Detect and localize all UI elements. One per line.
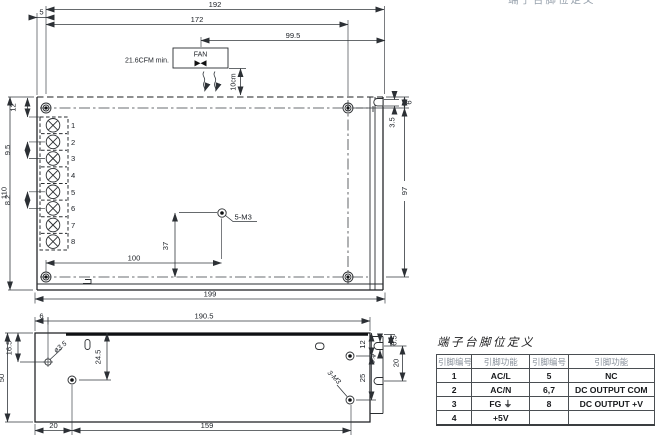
pin-number [530,411,568,426]
dimension-16-5: 16.5 [5,333,45,362]
dim-label-20: 20 [392,359,401,367]
terminal-number: 4 [71,171,75,180]
dim-label-3-5: 3.5 [368,354,377,365]
dim-label-10cm: 10cm [231,73,238,90]
m3-hole [346,352,354,360]
dim-label-50: 50 [0,374,6,382]
dim-label-20: 20 [49,421,57,430]
callout-5-m3: 5-M3 [226,213,258,222]
dim-label-199: 199 [204,290,217,299]
dim-label-12: 12 [358,340,367,348]
spec-sheet-page: 端子台脚位定义 [0,0,662,441]
terminal-number: 2 [71,138,75,147]
dimension-192: 192 [46,0,385,94]
dimension-199: 199 [35,290,385,304]
pin-col-header: 引脚编号 [437,355,472,369]
dimension-10cm: 10cm [229,69,246,96]
dim-label-6: 6 [405,100,414,104]
pin-function [568,411,654,426]
pin-function: AC/L [472,369,530,383]
dim-label-12: 12 [9,103,18,111]
pin-table-row: 4 +5V [437,411,655,426]
dimension-97: 97 [386,108,409,277]
pin-table-row: 2 AC/N 6,7 DC OUTPUT COM [437,383,655,397]
pin-number: 3 [437,397,472,411]
m3-hole [346,396,354,404]
mounting-screws [41,103,353,282]
m3-hole [68,376,76,384]
callout-3-m3: 3-M3 [326,370,347,397]
top-view-case-outline [37,97,383,290]
dim-label-16-5: 16.5 [5,341,14,356]
dim-label-192: 192 [209,0,222,9]
dim-label-172: 172 [191,15,204,24]
dimension-12-25: 12 25 [356,333,376,400]
pin-number: 1 [437,369,472,383]
fan-label: FAN [194,52,208,59]
dim-label-99-5: 99.5 [286,31,301,40]
dimension-24-5: 24.5 [79,333,111,380]
fan-callout: FAN 21.6CFM min. 10cm [125,48,246,95]
pin-number: 2 [437,383,472,397]
dimension-8-2: 8.2 [3,192,45,209]
dimension-3-5-right: 3.5 [384,91,399,128]
terminal-number: 3 [71,154,75,163]
airflow-note: 21.6CFM min. [125,58,169,65]
dim-label-37: 37 [161,242,170,250]
pin-col-header: 引脚功能 [472,355,530,369]
pin-col-header: 引脚功能 [568,355,654,369]
hole-callout-label: 5-M3 [235,213,252,222]
top-view-centerlines [40,100,368,284]
pin-table-row: 1 AC/L 5 NC [437,369,655,383]
pin-function: DC OUTPUT +V [568,397,654,411]
dim-label-190-5: 190.5 [194,312,213,321]
terminal-block: 1 2 3 4 5 6 7 8 [40,117,75,250]
pin-number: 5 [530,369,568,383]
callout-dia-3-5: ø3.5 [50,340,68,359]
pin-table-row: 3 FG ⏚ 8 DC OUTPUT +V [437,397,655,411]
dim-label-100: 100 [128,254,141,263]
dimension-99-5: 99.5 [201,31,385,47]
pin-function: FG ⏚ [472,397,530,411]
dim-label-3-5: 3.5 [388,117,397,128]
pin-function: DC OUTPUT COM [568,383,654,397]
dimension-37: 37 [161,213,217,278]
dimension-110: 110 [0,97,34,290]
pin-table-header-row: 引脚编号 引脚功能 引脚编号 引脚功能 [437,355,655,369]
terminal-number: 5 [71,188,75,197]
dim-label-159: 159 [201,421,214,430]
airflow-arrows-icon [203,72,216,92]
dim-label-9-5: 9.5 [3,145,12,156]
pin-function: NC [568,369,654,383]
fan-blade-icon [195,60,207,66]
dim-label-6: 6 [39,312,43,321]
dimension-5: 5 [29,8,54,96]
terminal-number: 7 [71,221,75,230]
pin-function: +5V [472,411,530,426]
dim-label-24-5: 24.5 [94,350,103,365]
dimension-9-5: 9.5 [3,142,45,159]
hole-dia-label: ø3.5 [53,340,68,354]
pin-table-title: 端子台脚位定义 [437,334,658,350]
dimension-6-right: 6 [356,97,414,108]
dimension-20-right: 20 [384,346,407,381]
terminal-number: 8 [71,237,75,246]
clipped-page-header-text: 端子台脚位定义 [508,0,662,7]
pin-function: AC/N [472,383,530,397]
pin-number: 8 [530,397,568,411]
side-view-holes [43,352,354,404]
dimension-6-5: 6.5 [384,335,407,347]
pin-number: 4 [437,411,472,426]
pin-definition-panel: 端子台脚位定义 引脚编号 引脚功能 引脚编号 引脚功能 1 AC/L 5 NC … [436,334,658,426]
pin-number: 6,7 [530,383,568,397]
dimension-159: 159 [72,405,351,435]
pin-col-header: 引脚编号 [530,355,568,369]
dim-label-8-2: 8.2 [3,195,12,206]
terminal-number: 6 [71,204,75,213]
dim-label-97: 97 [400,187,409,195]
dim-label-6-5: 6.5 [390,335,399,346]
m3-hole [218,209,226,217]
hole-m3-label: 3-M3 [326,370,342,386]
terminal-number: 1 [71,121,75,130]
dim-label-5: 5 [39,8,43,17]
dimension-12: 12 [9,98,41,117]
dim-label-25: 25 [358,374,367,382]
dimension-20-bottom: 20 [35,385,72,435]
pin-table: 引脚编号 引脚功能 引脚编号 引脚功能 1 AC/L 5 NC 2 AC/N 6… [436,354,655,426]
